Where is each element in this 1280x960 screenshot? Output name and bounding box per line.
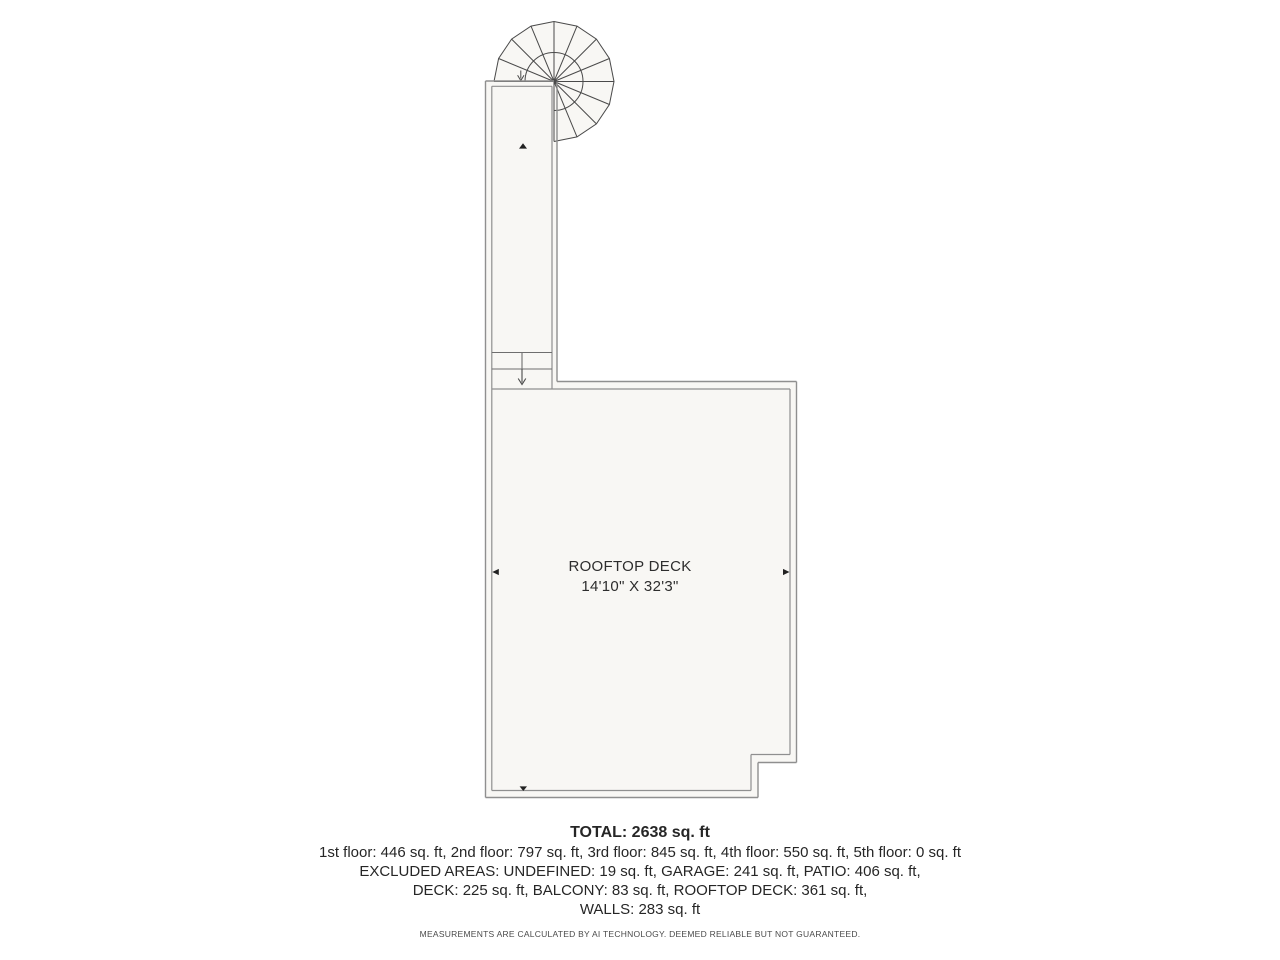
summary-block: TOTAL: 2638 sq. ft 1st floor: 446 sq. ft…	[319, 822, 961, 919]
floor-plan-drawing	[0, 0, 1280, 960]
deck-interior-fill	[486, 81, 797, 798]
total-area-line: TOTAL: 2638 sq. ft	[319, 822, 961, 843]
walls-line: WALLS: 283 sq. ft	[319, 900, 961, 919]
floor-plan-page: ROOFTOP DECK 14'10" X 32'3" TOTAL: 2638 …	[0, 0, 1280, 960]
floors-line: 1st floor: 446 sq. ft, 2nd floor: 797 sq…	[319, 843, 961, 862]
room-dimensions: 14'10" X 32'3"	[568, 577, 691, 597]
excluded-areas-line: EXCLUDED AREAS: UNDEFINED: 19 sq. ft, GA…	[319, 862, 961, 881]
decks-line: DECK: 225 sq. ft, BALCONY: 83 sq. ft, RO…	[319, 881, 961, 900]
disclaimer-text: MEASUREMENTS ARE CALCULATED BY AI TECHNO…	[420, 929, 861, 939]
room-label: ROOFTOP DECK 14'10" X 32'3"	[568, 557, 691, 597]
room-name: ROOFTOP DECK	[568, 557, 691, 577]
